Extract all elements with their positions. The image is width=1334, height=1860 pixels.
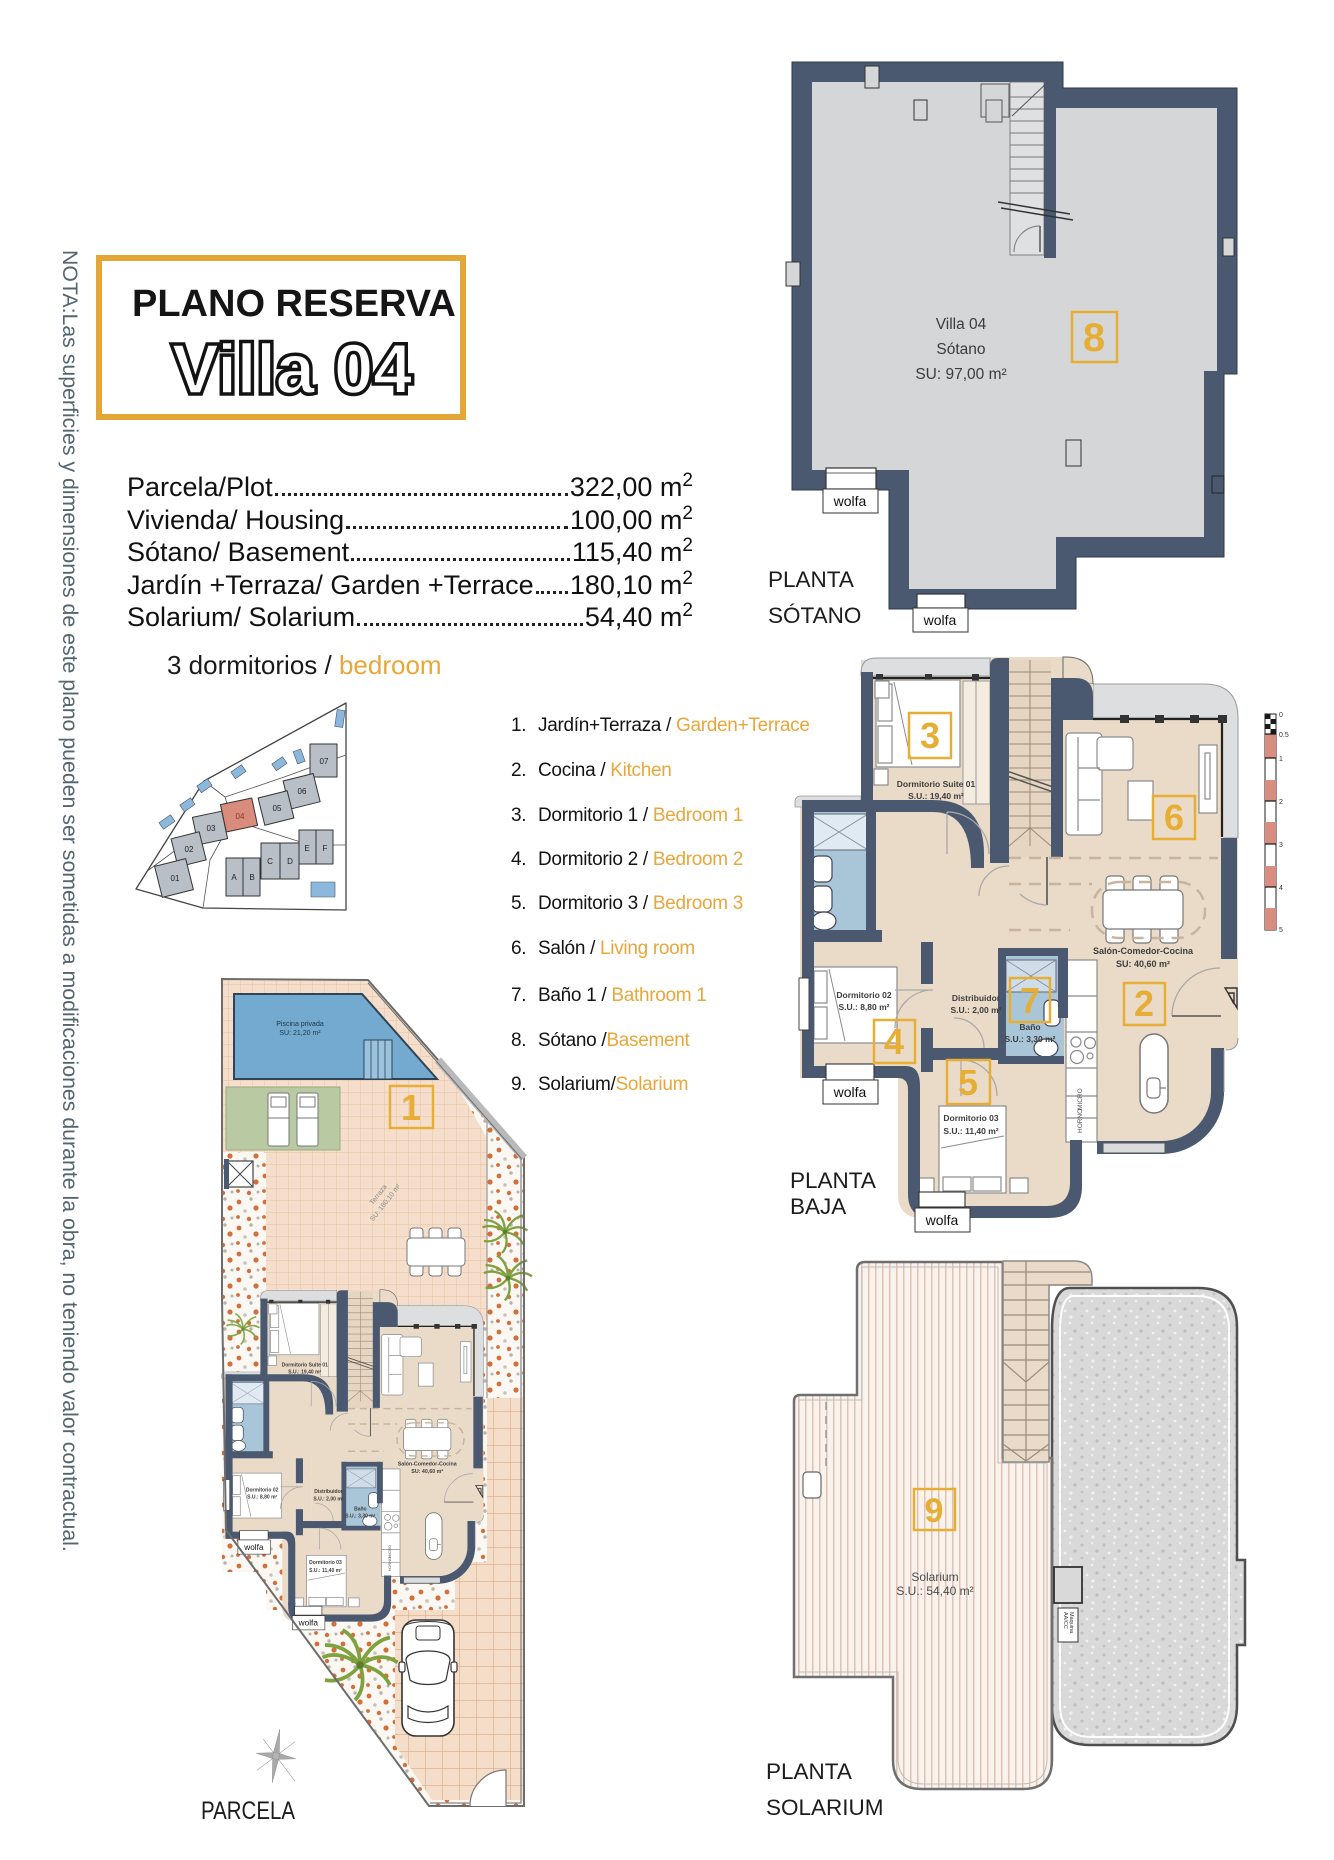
svg-text:F: F [323, 844, 328, 853]
svg-text:04: 04 [236, 812, 245, 821]
svg-text:7: 7 [1020, 980, 1040, 1021]
svg-text:S.U.: 3,30 m²: S.U.: 3,30 m² [1004, 1034, 1055, 1044]
svg-text:02: 02 [185, 845, 194, 854]
svg-text:wolfa: wolfa [923, 612, 957, 628]
svg-text:AA/CC: AA/CC [1062, 1612, 1068, 1629]
svg-text:HORNO: HORNO [1077, 1109, 1084, 1133]
svg-text:A: A [231, 873, 237, 882]
svg-text:wolfa: wolfa [833, 1084, 867, 1100]
svg-text:Dormitorio 02: Dormitorio 02 [836, 990, 892, 1000]
svg-text:Sótano: Sótano [936, 341, 985, 358]
svg-text:01: 01 [171, 874, 180, 883]
svg-text:S.U.: 8,80 m²: S.U.: 8,80 m² [838, 1002, 889, 1012]
svg-text:BAJA: BAJA [790, 1194, 846, 1219]
svg-text:SU: 40,60 m²: SU: 40,60 m² [1116, 959, 1170, 969]
svg-text:MICRO: MICRO [1077, 1088, 1084, 1110]
svg-text:4: 4 [884, 1021, 904, 1062]
svg-text:S.U.: 11,40 m²: S.U.: 11,40 m² [943, 1126, 998, 1136]
svg-text:1: 1 [401, 1087, 421, 1128]
svg-text:Salón-Comedor-Cocina: Salón-Comedor-Cocina [1093, 946, 1194, 956]
svg-text:03: 03 [207, 824, 216, 833]
svg-text:2: 2 [1279, 799, 1283, 806]
svg-text:4: 4 [1279, 885, 1283, 892]
svg-text:6: 6 [1164, 797, 1184, 838]
svg-text:07: 07 [320, 757, 329, 766]
svg-text:Baño: Baño [1019, 1022, 1040, 1032]
svg-text:0: 0 [1279, 712, 1283, 719]
svg-text:Villa 04: Villa 04 [936, 316, 987, 333]
svg-text:SÓTANO: SÓTANO [768, 603, 861, 628]
svg-text:05: 05 [273, 804, 282, 813]
svg-text:Solarium: Solarium [911, 1570, 958, 1584]
svg-text:Piscina privada: Piscina privada [276, 1021, 324, 1028]
svg-text:9: 9 [925, 1492, 944, 1530]
svg-text:wolfa: wolfa [925, 1212, 959, 1228]
svg-text:3: 3 [1279, 842, 1283, 849]
svg-text:2: 2 [1134, 983, 1154, 1024]
svg-text:0.5: 0.5 [1279, 732, 1289, 739]
svg-text:PLANTA: PLANTA [790, 1168, 876, 1193]
svg-text:S.U.: 19,40 m²: S.U.: 19,40 m² [908, 791, 964, 801]
svg-text:Dormitorio Suite 01: Dormitorio Suite 01 [897, 779, 976, 789]
svg-text:PARCELA: PARCELA [201, 1797, 295, 1825]
svg-text:S.U.: 54,40 m²: S.U.: 54,40 m² [896, 1584, 973, 1598]
svg-text:5: 5 [958, 1062, 978, 1103]
svg-text:Distribuidor: Distribuidor [952, 993, 1001, 1003]
svg-text:wolfa: wolfa [833, 493, 867, 509]
svg-text:PLANTA: PLANTA [766, 1759, 852, 1784]
svg-text:S.U.: 2,00 m²: S.U.: 2,00 m² [950, 1005, 1001, 1015]
svg-text:PLANTA: PLANTA [768, 567, 854, 592]
svg-text:8: 8 [1083, 316, 1105, 360]
svg-text:SOLARIUM: SOLARIUM [766, 1795, 884, 1820]
svg-text:E: E [304, 844, 309, 853]
svg-text:SU: 97,00 m²: SU: 97,00 m² [915, 366, 1006, 383]
svg-text:D: D [287, 857, 293, 866]
svg-text:Dormitorio 03: Dormitorio 03 [943, 1113, 999, 1123]
svg-text:B: B [249, 873, 254, 882]
svg-text:06: 06 [298, 787, 307, 796]
svg-text:3: 3 [920, 715, 940, 756]
svg-text:SU: 21,20 m²: SU: 21,20 m² [279, 1030, 321, 1037]
svg-text:5: 5 [1279, 927, 1283, 934]
svg-text:C: C [267, 857, 273, 866]
svg-text:1: 1 [1279, 756, 1283, 763]
